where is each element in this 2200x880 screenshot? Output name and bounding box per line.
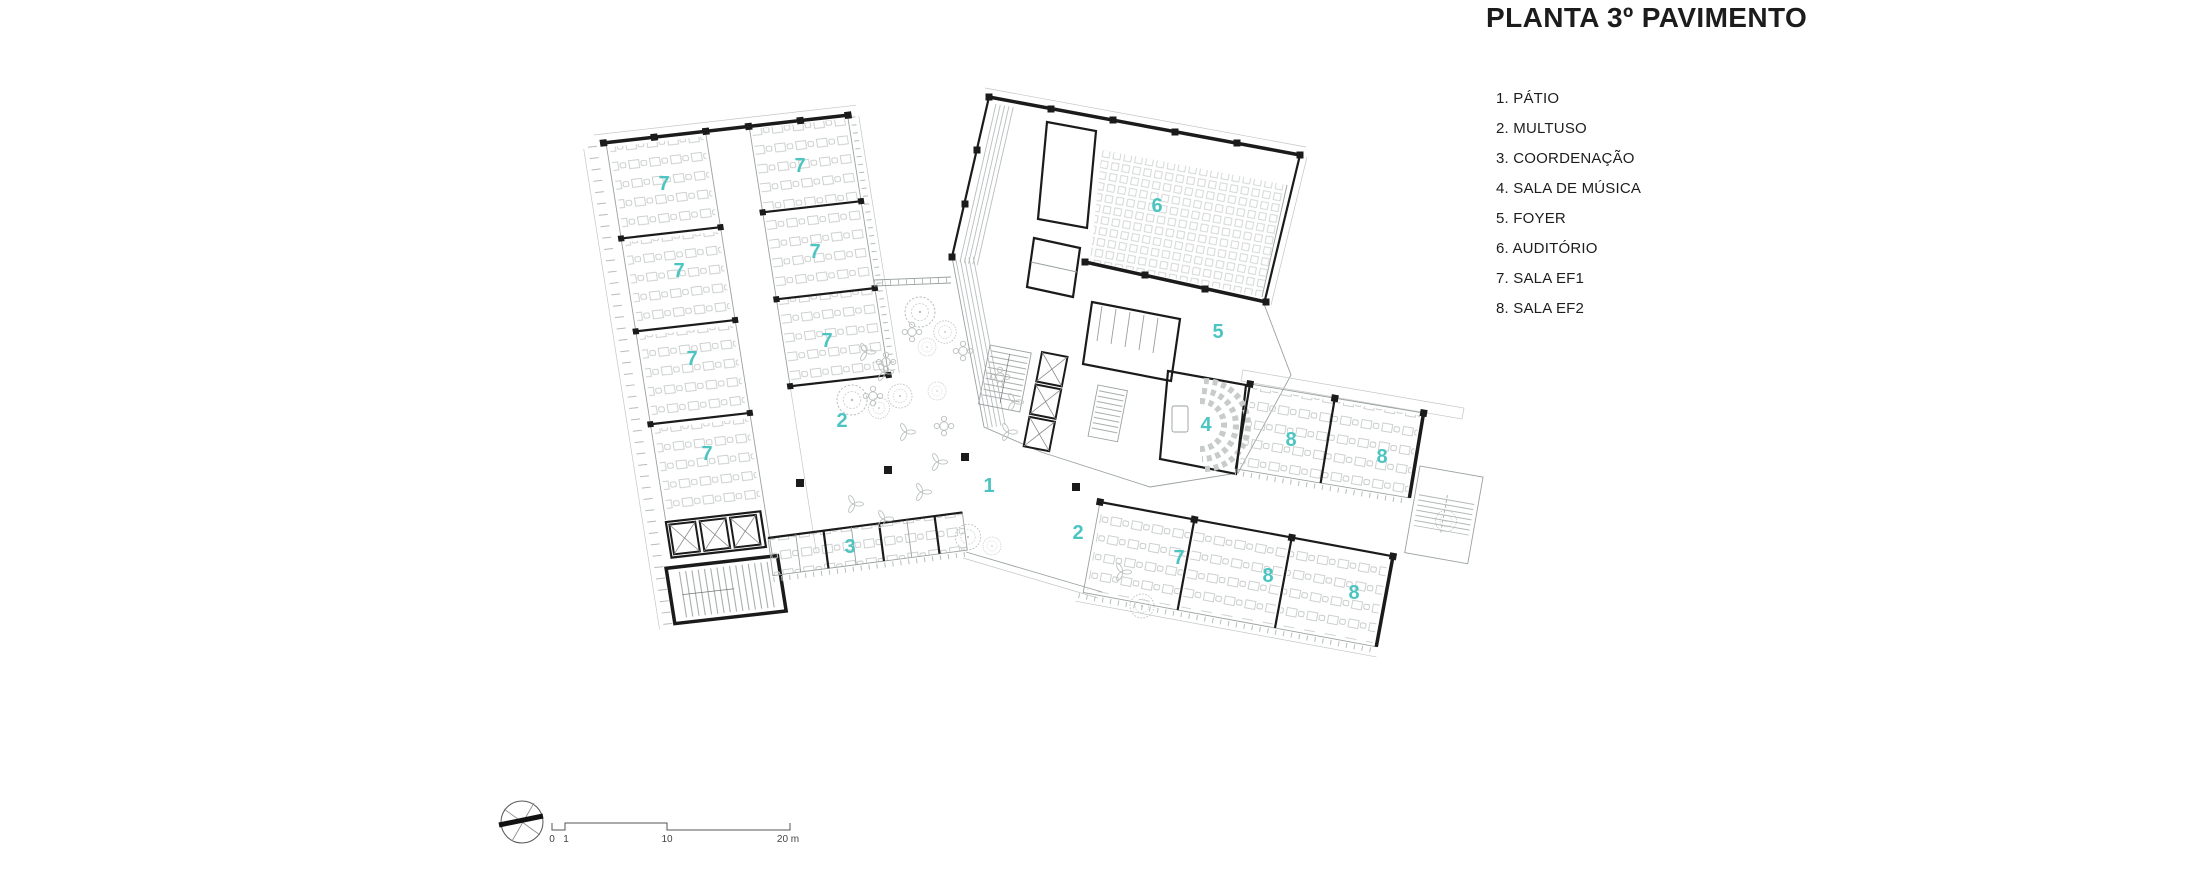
bottom-wing: [1076, 497, 1398, 657]
legend-item-coordenacao: 3. COORDENAÇÃO: [1496, 144, 1641, 174]
legend-item-auditorio: 6. AUDITÓRIO: [1496, 233, 1641, 263]
auditorium-seats: [1090, 150, 1287, 297]
room-number-label: 7: [794, 155, 805, 177]
room-number-label: 1: [983, 475, 994, 497]
room-number-label: 2: [836, 410, 847, 432]
right-wing: [1232, 380, 1428, 502]
room-number-label: 3: [844, 536, 855, 558]
room-number-label: 7: [673, 260, 684, 282]
legend: 1. PÁTIO 2. MULTUSO 3. COORDENAÇÃO 4. SA…: [1496, 84, 1641, 323]
coordination-band: [768, 512, 968, 579]
room-number-label: 5: [1212, 321, 1223, 343]
patio-edge: [966, 552, 1102, 592]
room-number-label: 8: [1285, 429, 1296, 451]
north-arrow-icon: [499, 801, 543, 843]
floor-plan: 7777777654887881223: [0, 0, 2200, 880]
scale-label-1: 1: [563, 834, 569, 845]
secondary-stair: [1088, 385, 1127, 442]
page: { "title": "PLANTA 3º PAVIMENTO", "legen…: [0, 0, 2200, 880]
core-elevators: [1024, 352, 1068, 451]
room-number-label: 4: [1200, 414, 1212, 436]
scale-label-10: 10: [661, 834, 672, 845]
page-title: PLANTA 3º PAVIMENTO: [1486, 2, 1807, 34]
elevator-shafts: [666, 511, 766, 557]
scale-label-20m: 20 m: [777, 834, 799, 845]
scale-label-0: 0: [549, 834, 555, 845]
room-number-label: 7: [658, 173, 669, 195]
room-number-label: 8: [1376, 446, 1387, 468]
room-number-label: 7: [686, 348, 697, 370]
piano: [1172, 406, 1188, 432]
room-number-label: 7: [809, 241, 820, 263]
service-rooms: [1027, 238, 1080, 297]
legend-item-sala-ef2: 8. SALA EF2: [1496, 293, 1641, 323]
room-number-label: 8: [1262, 565, 1273, 587]
legend-item-foyer: 5. FOYER: [1496, 204, 1641, 234]
legend-item-multuso: 2. MULTUSO: [1496, 114, 1641, 144]
external-stair: [1405, 466, 1483, 564]
room-number-label: 8: [1348, 582, 1359, 604]
room-number-label: 2: [1072, 522, 1083, 544]
scale-bar: [552, 823, 790, 830]
legend-item-sala-ef1: 7. SALA EF1: [1496, 263, 1641, 293]
room-number-label: 7: [701, 443, 712, 465]
entrance-stair: [666, 556, 786, 624]
legend-item-sala-de-musica: 4. SALA DE MÚSICA: [1496, 174, 1641, 204]
room-number-label: 6: [1151, 195, 1162, 217]
legend-item-patio: 1. PÁTIO: [1496, 84, 1641, 114]
wc-block: [1083, 302, 1180, 381]
room-number-label: 7: [1173, 547, 1184, 569]
stage: [1038, 122, 1096, 228]
room-number-label: 7: [821, 330, 832, 352]
